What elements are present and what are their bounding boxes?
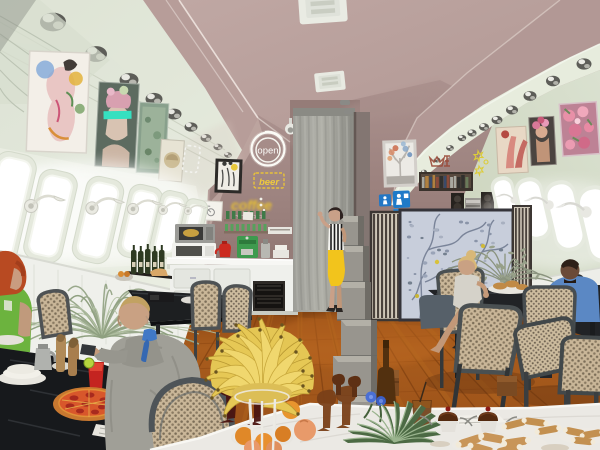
svg-text:beer: beer [259, 177, 280, 188]
svg-text:coffee: coffee [231, 197, 272, 213]
svg-text:open: open [257, 146, 278, 157]
